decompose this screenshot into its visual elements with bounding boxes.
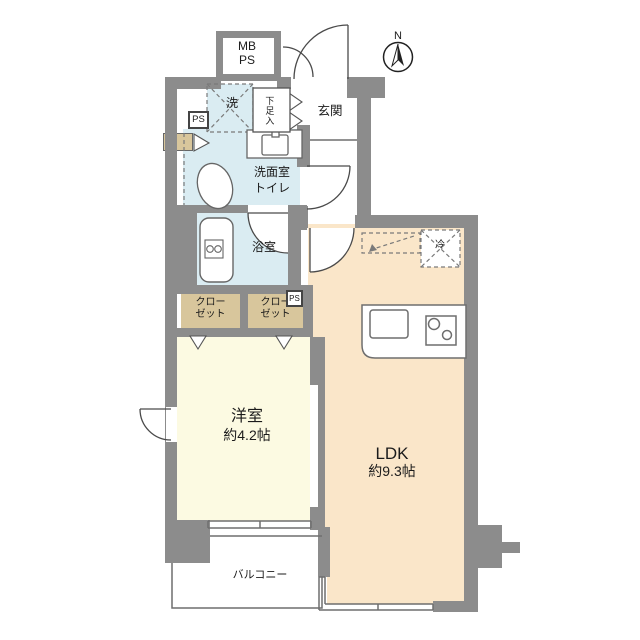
ldk-label: LDK: [362, 444, 422, 464]
compass-north-label: N: [390, 30, 406, 43]
entry-door-small-arc: [283, 47, 313, 77]
laundry-label: 洗: [217, 97, 247, 111]
bath-controls: [205, 240, 223, 258]
bathtub-group: [200, 218, 233, 282]
bedroom-label: 洋室: [217, 408, 277, 426]
bedroom-size-label: 約4.2帖: [212, 427, 282, 443]
closet-door-notch-1: [190, 336, 206, 349]
shoe-door-triangle-1: [289, 93, 302, 111]
entry-door-arc: [294, 25, 348, 79]
entrance-label: 玄関: [302, 104, 358, 118]
closet-left-label-line1: クロー: [185, 297, 236, 309]
ldk-size-label: 約9.3帖: [357, 463, 427, 479]
washroom-label-line2: トイレ: [239, 182, 305, 196]
kitchen-sink: [370, 310, 408, 338]
plan-lineart: [0, 0, 640, 640]
refrigerator-label: 冷: [431, 240, 449, 252]
kitchen: [362, 305, 466, 358]
bathroom-label: 浴室: [246, 241, 282, 255]
mbps-label-line2: PS: [222, 54, 272, 68]
shaft-door-triangle: [194, 134, 209, 151]
toilet: [192, 159, 239, 213]
ldk-door-swing-area: [310, 228, 354, 272]
shoe-cabinet-label: 下足入: [264, 92, 274, 130]
washroom-label-line1: 洗面室: [239, 166, 305, 180]
bedroom-window-arc: [140, 409, 171, 440]
closet-left-label-line2: ゼット: [185, 309, 236, 321]
windows: [172, 140, 433, 610]
closet-right-label-line2: ゼット: [250, 309, 301, 321]
mbps-label-line1: MB: [222, 40, 272, 54]
pipe-space-closet-label: PS: [286, 290, 303, 307]
balcony-label: バルコニー: [227, 569, 293, 582]
pipe-space-upper-label: PS: [188, 111, 209, 129]
washroom-door-arc: [307, 166, 350, 209]
washbasin-bowl: [262, 135, 288, 155]
floorplan: MB PS N 玄関 下足入 洗 PS 洗面室 トイレ 浴室 クロー ゼット ク…: [0, 0, 640, 640]
cupboard-arrowhead: [369, 244, 377, 252]
shoe-door-triangle-2: [289, 112, 302, 130]
compass-icon: [384, 43, 413, 72]
closet-door-notch-2: [276, 336, 292, 349]
